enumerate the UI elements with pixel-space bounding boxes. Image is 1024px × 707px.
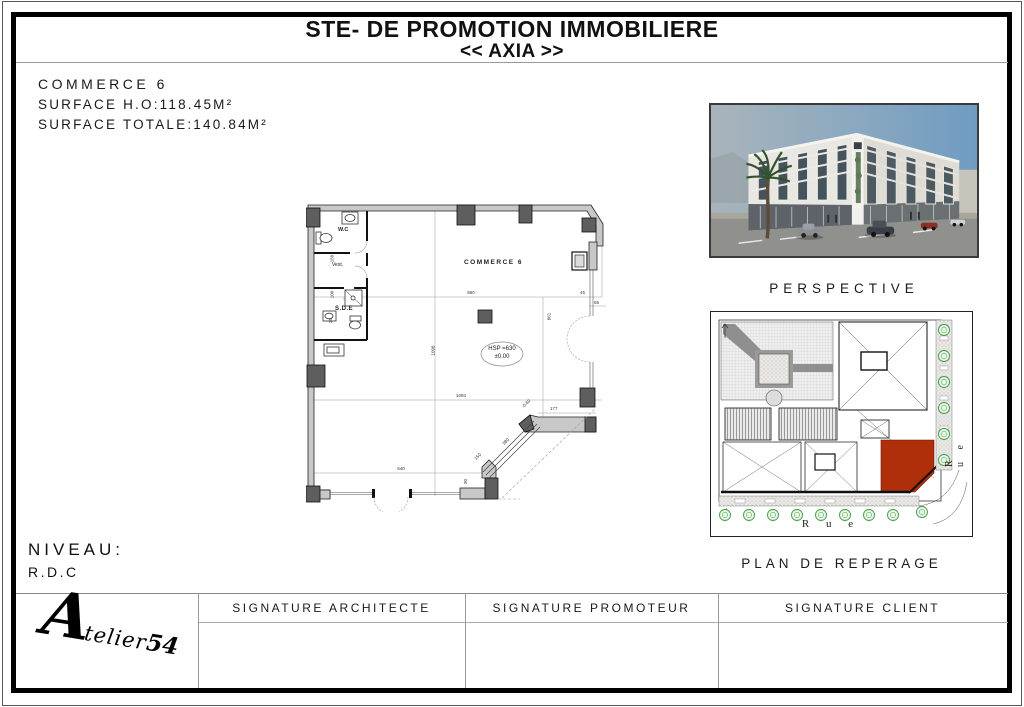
dim-1098: 1098 <box>431 345 436 355</box>
signature-header-underline <box>198 622 1008 623</box>
dim-860: 860 <box>451 290 491 295</box>
plan-sde-label: S.D.E <box>335 306 353 312</box>
dim-90: 90 <box>463 479 468 484</box>
surface-totale: SURFACE TOTALE:140.84M² <box>38 117 268 132</box>
dim-65: 65 <box>594 300 599 305</box>
surface-ho: SURFACE H.O:118.45M² <box>38 97 233 112</box>
dim-177: 177 <box>550 406 558 411</box>
floor-plan: COMMERCE 6 W.C Vest. S.D.E HSP =630 ±0.0… <box>306 196 608 512</box>
signature-col-client: SIGNATURE CLIENT <box>718 601 1007 615</box>
signature-table-top-rule <box>16 593 1008 594</box>
signature-col-promoter: SIGNATURE PROMOTEUR <box>465 601 718 615</box>
dim-1094: 1094 <box>441 393 481 398</box>
plan-vest-label: Vest. <box>332 262 343 268</box>
logo-suffix: 54 <box>145 629 181 661</box>
site-plan-drawing <box>711 312 972 536</box>
site-plan-caption: PLAN DE REPERAGE <box>710 556 973 571</box>
perspective-drawing <box>711 105 977 256</box>
dim-640: 640 <box>381 466 421 471</box>
perspective-caption: PERSPECTIVE <box>709 281 979 296</box>
parcel-highlight <box>881 440 934 492</box>
dim-861: 861 <box>546 313 551 321</box>
plan-room-label: COMMERCE 6 <box>446 259 541 266</box>
sheet-subtitle: << AXIA >> <box>0 41 1024 63</box>
floor-plan-drawing <box>306 196 608 512</box>
dim-left-100: 100 <box>329 291 334 299</box>
dim-45: 45 <box>580 290 585 295</box>
street-label-bottom: R u e <box>771 518 891 530</box>
lot-label: COMMERCE 6 <box>38 76 168 92</box>
plan-wc-label: W.C <box>338 227 348 233</box>
site-plan: R u e R u e <box>710 311 973 537</box>
dim-left-25: 25 <box>328 318 333 323</box>
plan-level-label: ±0.00 <box>478 354 526 360</box>
sheet-title: STE- DE PROMOTION IMMOBILIERE <box>0 16 1024 43</box>
signature-col-architect: SIGNATURE ARCHITECTE <box>198 601 465 615</box>
perspective-image <box>709 103 979 258</box>
street-label-right: R u e <box>944 439 966 467</box>
niveau-label: NIVEAU: <box>28 540 124 560</box>
plan-hsp-label: HSP =630 <box>478 346 526 352</box>
dim-left-150: 150 <box>329 255 334 263</box>
